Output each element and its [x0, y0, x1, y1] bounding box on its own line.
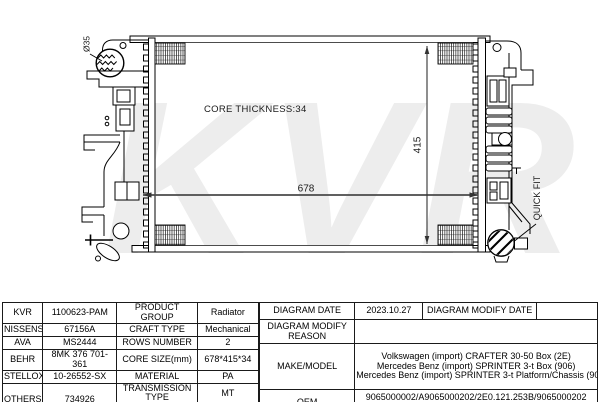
- make-model-value: Volkswagen (import) CRAFTER 30-50 Box (2…: [355, 344, 598, 390]
- fin-block-top-left: [155, 43, 185, 64]
- ava-number: MS2444: [43, 336, 117, 349]
- brand-nissens-label: NISSENS: [3, 323, 43, 336]
- material-label: MATERIAL: [117, 370, 197, 383]
- oem-value: 9065000002/A9065000202/2E0.121.253B/9065…: [355, 389, 598, 402]
- make-model-label: MAKE/MODEL: [260, 344, 355, 390]
- table-row: DIAGRAM DATE 2023.10.27 DIAGRAM MODIFY D…: [260, 303, 598, 320]
- core-size-label: CORE SIZE(mm): [117, 349, 197, 370]
- drain-port: [113, 223, 129, 239]
- inlet-diameter-label: Ø35: [82, 36, 92, 52]
- sensor-port: [499, 133, 512, 146]
- make-model-line: Mercedes Benz (import) SPRINTER 3-t Plat…: [356, 371, 596, 381]
- crossref-specs-table: KVR 1100623-PAM PRODUCT GROUP Radiator N…: [2, 302, 259, 402]
- table-row: KVR 1100623-PAM PRODUCT GROUP Radiator: [3, 303, 259, 324]
- table-row: NISSENS 67156A CRAFT TYPE Mechanical: [3, 323, 259, 336]
- diagram-date-label: DIAGRAM DATE: [260, 303, 355, 320]
- diagram-modify-date-value: [536, 303, 597, 320]
- radiator-diagram: KVR: [0, 0, 600, 302]
- product-group-label: PRODUCT GROUP: [117, 303, 197, 324]
- brand-ava-label: AVA: [3, 336, 43, 349]
- radiator-top-bar: [130, 36, 490, 43]
- table-row: STELLOX 10-26552-SX MATERIAL PA: [3, 370, 259, 383]
- stellox-number: 10-26552-SX: [43, 370, 117, 383]
- catalog-page: KVR: [0, 0, 600, 402]
- width-dimension-label: 678: [298, 184, 315, 195]
- kvr-number: 1100623-PAM: [43, 303, 117, 324]
- table-row: OEM 9065000002/A9065000202/2E0.121.253B/…: [260, 389, 598, 402]
- craft-type-value: Mechanical: [197, 323, 258, 336]
- diagram-modify-reason-value: [355, 320, 598, 344]
- height-dimension-label: 415: [413, 136, 424, 153]
- craft-type-label: CRAFT TYPE: [117, 323, 197, 336]
- diagram-date-value: 2023.10.27: [355, 303, 423, 320]
- behr-number: 8MK 376 701-361: [43, 349, 117, 370]
- rows-number-label: ROWS NUMBER: [117, 336, 197, 349]
- radiator-bottom-bar: [132, 246, 490, 253]
- oem-line: 9065000002/A9065000202/2E0.121.253B/9065…: [356, 393, 596, 402]
- table-row: MAKE/MODEL Volkswagen (import) CRAFTER 3…: [260, 344, 598, 390]
- table-row: DIAGRAM MODIFY REASON: [260, 320, 598, 344]
- diagram-info-table: DIAGRAM DATE 2023.10.27 DIAGRAM MODIFY D…: [259, 302, 598, 402]
- table-row: BEHR 8MK 376 701-361 CORE SIZE(mm) 678*4…: [3, 349, 259, 370]
- diagram-modify-date-label: DIAGRAM MODIFY DATE: [423, 303, 536, 320]
- oem-label: OEM: [260, 389, 355, 402]
- fin-block-top-right: [438, 43, 473, 64]
- brand-stellox-label: STELLOX: [3, 370, 43, 383]
- mount-hole-top-left: [120, 43, 126, 49]
- nissens-number: 67156A: [43, 323, 117, 336]
- transmission-type-label: TRANSMISSION TYPE: [117, 383, 197, 402]
- table-row: OTHERS 734926 TRANSMISSION TYPE MT: [3, 383, 259, 402]
- product-group-value: Radiator: [197, 303, 258, 324]
- lower-bracket: [82, 207, 104, 222]
- transmission-type-value: MT: [197, 383, 258, 402]
- core-thickness-label: CORE THICKNESS:34: [204, 104, 307, 115]
- material-value: PA: [197, 370, 258, 383]
- quick-fit-label: QUICK FIT: [532, 175, 542, 220]
- rows-number-value: 2: [197, 336, 258, 349]
- brand-behr-label: BEHR: [3, 349, 43, 370]
- brand-kvr-label: KVR: [3, 303, 43, 324]
- core-size-value: 678*415*34: [197, 349, 258, 370]
- spec-table: KVR 1100623-PAM PRODUCT GROUP Radiator N…: [2, 302, 598, 402]
- table-row: AVA MS2444 ROWS NUMBER 2: [3, 336, 259, 349]
- mount-hole-top-right: [493, 44, 501, 52]
- fin-block-bottom-right: [438, 225, 473, 245]
- others-number: 734926: [43, 383, 117, 402]
- brand-others-label: OTHERS: [3, 383, 43, 402]
- diagram-modify-reason-label: DIAGRAM MODIFY REASON: [260, 320, 355, 344]
- fin-block-bottom-left: [155, 225, 185, 245]
